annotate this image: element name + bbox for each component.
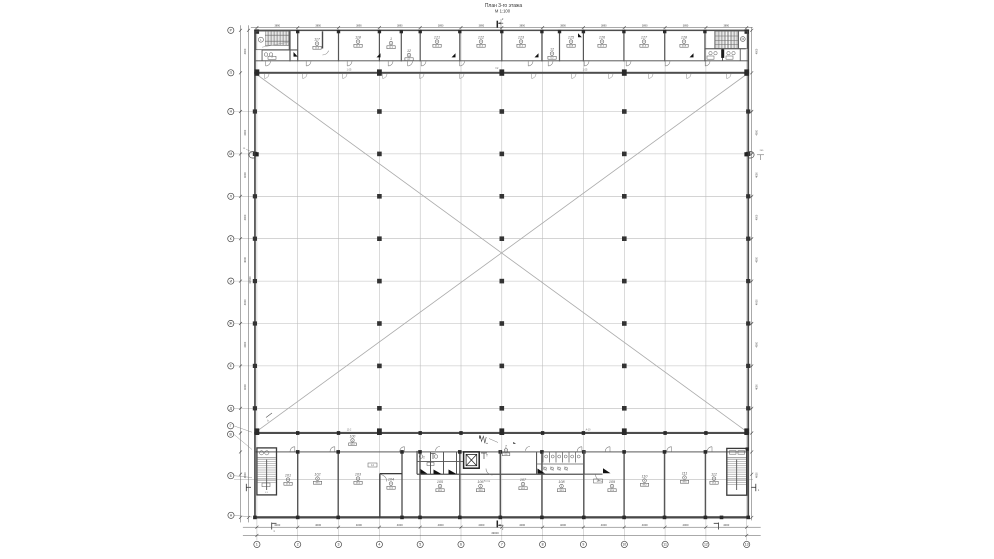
svg-text:13: 13 [745, 543, 749, 547]
svg-text:4000: 4000 [274, 523, 280, 527]
svg-text:49000: 49000 [491, 531, 499, 535]
svg-text:6: 6 [460, 543, 462, 547]
svg-text:4000: 4000 [755, 472, 758, 478]
svg-text:122: 122 [478, 36, 484, 40]
svg-text:127: 127 [641, 36, 648, 40]
svg-text:A-10: A-10 [586, 429, 592, 432]
svg-text:103: 103 [355, 473, 362, 477]
svg-text:3: 3 [338, 543, 340, 547]
svg-text:4000: 4000 [642, 523, 648, 527]
svg-text:3890: 3890 [683, 24, 689, 27]
svg-text:4000: 4000 [755, 384, 758, 390]
svg-text:12: 12 [550, 48, 554, 52]
svg-text:2: 2 [297, 543, 299, 547]
svg-text:4000: 4000 [560, 523, 566, 527]
svg-text:112: 112 [711, 473, 717, 477]
svg-text:4000: 4000 [478, 523, 484, 527]
svg-text:100: 100 [350, 435, 356, 439]
svg-text:4000: 4000 [243, 214, 247, 220]
svg-text:4000: 4000 [243, 129, 247, 135]
svg-text:128: 128 [681, 36, 688, 40]
svg-text:4000: 4000 [243, 341, 247, 347]
svg-text:4000: 4000 [243, 384, 247, 390]
svg-text:123: 123 [518, 36, 525, 40]
svg-text:3890: 3890 [519, 24, 525, 27]
svg-text:106: 106 [477, 480, 484, 484]
svg-text:3890: 3890 [397, 24, 403, 27]
svg-text:1.05: 1.05 [347, 68, 352, 71]
svg-text:3890: 3890 [642, 24, 648, 27]
svg-text:4000: 4000 [755, 48, 758, 54]
svg-text:4000: 4000 [755, 214, 758, 220]
svg-text:8: 8 [542, 543, 544, 547]
svg-text:4000: 4000 [243, 48, 247, 54]
svg-text:4000: 4000 [755, 129, 758, 135]
svg-text:12: 12 [704, 543, 708, 547]
svg-text:М 1:100: М 1:100 [495, 8, 511, 13]
svg-text:107: 107 [520, 478, 527, 482]
svg-text:3890: 3890 [438, 24, 444, 27]
svg-text:4000: 4000 [723, 523, 729, 527]
svg-text:Л: Л [230, 195, 232, 199]
svg-text:4000: 4000 [356, 523, 362, 527]
svg-text:41500: 41500 [248, 276, 252, 284]
svg-text:3890: 3890 [275, 24, 281, 27]
svg-text:101: 101 [285, 474, 291, 478]
svg-text:111: 111 [682, 472, 688, 476]
svg-text:121: 121 [434, 36, 440, 40]
svg-text:4000: 4000 [601, 523, 607, 527]
svg-text:4000: 4000 [683, 523, 689, 527]
svg-text:109: 109 [609, 480, 615, 484]
svg-text:4000: 4000 [755, 172, 758, 178]
svg-text:М: М [229, 152, 232, 156]
svg-text:2: 2 [504, 445, 507, 449]
svg-text:104: 104 [388, 478, 394, 482]
svg-text:102: 102 [314, 473, 320, 477]
svg-text:Выход: Выход [484, 481, 491, 483]
svg-text:4: 4 [378, 543, 380, 547]
svg-text:1: 1 [390, 37, 392, 41]
svg-text:1: 1 [256, 543, 258, 547]
svg-text:125: 125 [568, 36, 575, 40]
svg-text:Г: Г [230, 424, 232, 428]
svg-text:4000: 4000 [243, 172, 247, 178]
svg-text:T: T [486, 454, 488, 458]
svg-text:10: 10 [622, 543, 626, 547]
svg-text:12: 12 [407, 49, 411, 53]
svg-text:11: 11 [663, 543, 667, 547]
svg-text:4000: 4000 [755, 341, 758, 347]
svg-text:4000: 4000 [243, 256, 247, 262]
svg-text:3890: 3890 [479, 24, 485, 27]
svg-text:118: 118 [355, 36, 362, 40]
svg-text:4000: 4000 [438, 523, 444, 527]
svg-text:126: 126 [599, 36, 606, 40]
svg-text:3890: 3890 [724, 24, 730, 27]
svg-text:117: 117 [314, 38, 321, 42]
svg-text:7: 7 [501, 543, 503, 547]
svg-text:К: К [230, 237, 232, 241]
svg-text:108: 108 [558, 480, 565, 484]
svg-text:4000: 4000 [315, 523, 321, 527]
svg-text:5: 5 [419, 543, 421, 547]
svg-text:3890: 3890 [601, 24, 607, 27]
svg-text:10.2: 10.2 [347, 430, 352, 432]
svg-text:1.05: 1.05 [583, 68, 588, 71]
svg-text:105: 105 [437, 480, 444, 484]
svg-text:4000: 4000 [755, 299, 758, 305]
svg-text:T: T [423, 456, 425, 460]
svg-text:3890: 3890 [356, 24, 362, 27]
svg-text:9: 9 [582, 543, 584, 547]
svg-text:110: 110 [642, 475, 649, 479]
svg-text:4000: 4000 [243, 299, 247, 305]
svg-text:3890: 3890 [315, 24, 321, 27]
svg-text:4000: 4000 [755, 257, 758, 263]
svg-text:3890: 3890 [560, 24, 566, 27]
svg-text:4000: 4000 [519, 523, 525, 527]
svg-text:4000: 4000 [397, 523, 403, 527]
